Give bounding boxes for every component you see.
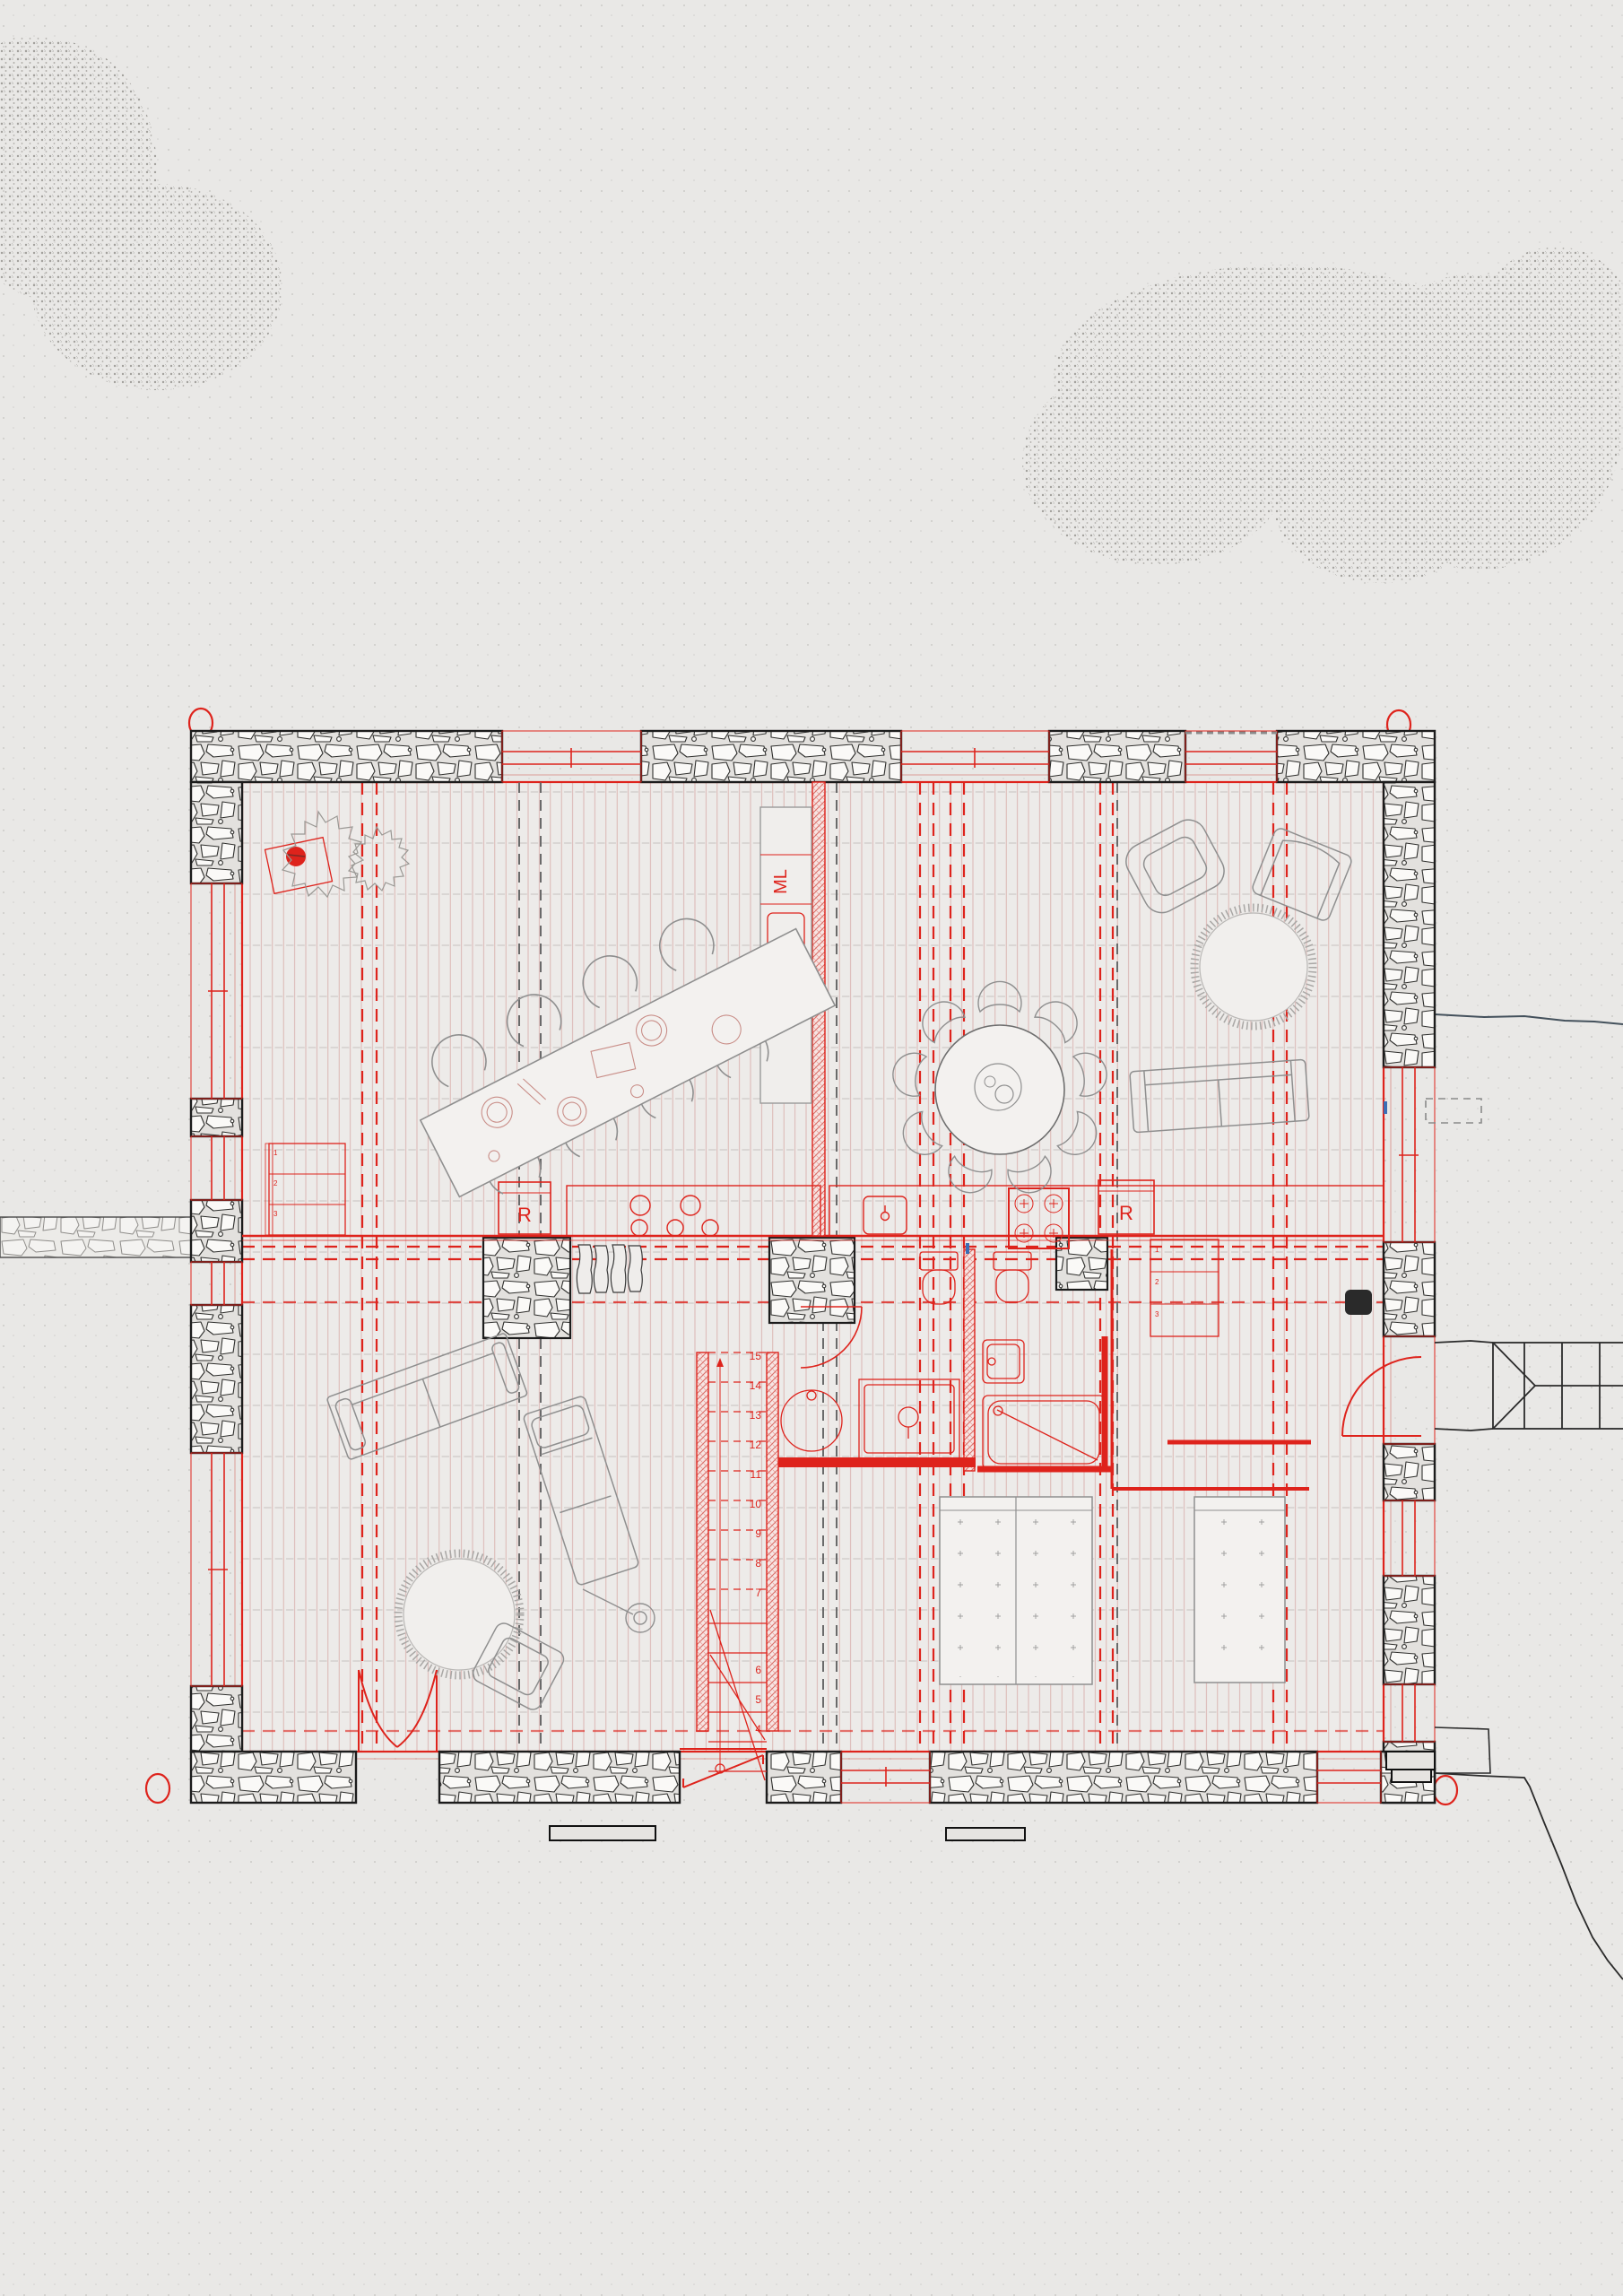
fridge-left-label: R bbox=[517, 1204, 532, 1226]
stair-number: 4 bbox=[755, 1723, 761, 1735]
stair-number: 5 bbox=[755, 1693, 761, 1706]
stair-number: 11 bbox=[751, 1468, 762, 1481]
wardrobe-shelf-number: 3 bbox=[1155, 1310, 1159, 1318]
cabinet-shelf-number: 2 bbox=[273, 1179, 278, 1187]
fridge-right-label: R bbox=[1119, 1202, 1133, 1224]
stair-number: 8 bbox=[755, 1557, 761, 1570]
stair-number: 10 bbox=[750, 1498, 762, 1510]
stair-number: 15 bbox=[750, 1350, 762, 1362]
stair-number: 6 bbox=[755, 1664, 761, 1676]
stair-number: 14 bbox=[750, 1379, 762, 1392]
bed-double bbox=[940, 1497, 1092, 1684]
wardrobe-shelf-number: 1 bbox=[1155, 1246, 1159, 1254]
stair-number: 9 bbox=[755, 1527, 761, 1540]
garden-wall-left bbox=[0, 1217, 191, 1257]
bed-single bbox=[1194, 1497, 1285, 1683]
stair-number: 7 bbox=[755, 1587, 761, 1599]
cabinet-shelf-number: 3 bbox=[273, 1210, 278, 1218]
cabinet-shelf-number: 1 bbox=[273, 1149, 278, 1157]
stair-number: 12 bbox=[750, 1439, 762, 1451]
wardrobe-shelf-number: 2 bbox=[1155, 1278, 1159, 1286]
stair-number: 13 bbox=[750, 1409, 762, 1422]
floor-plan-sheet: 15 14 13 12 11 10 9 8 7 6 5 4 bbox=[0, 0, 1623, 2296]
floor-plan-drawing: 15 14 13 12 11 10 9 8 7 6 5 4 bbox=[0, 0, 1623, 2296]
wood-stove bbox=[1345, 1290, 1372, 1315]
washing-machine-label: ML bbox=[771, 869, 791, 894]
